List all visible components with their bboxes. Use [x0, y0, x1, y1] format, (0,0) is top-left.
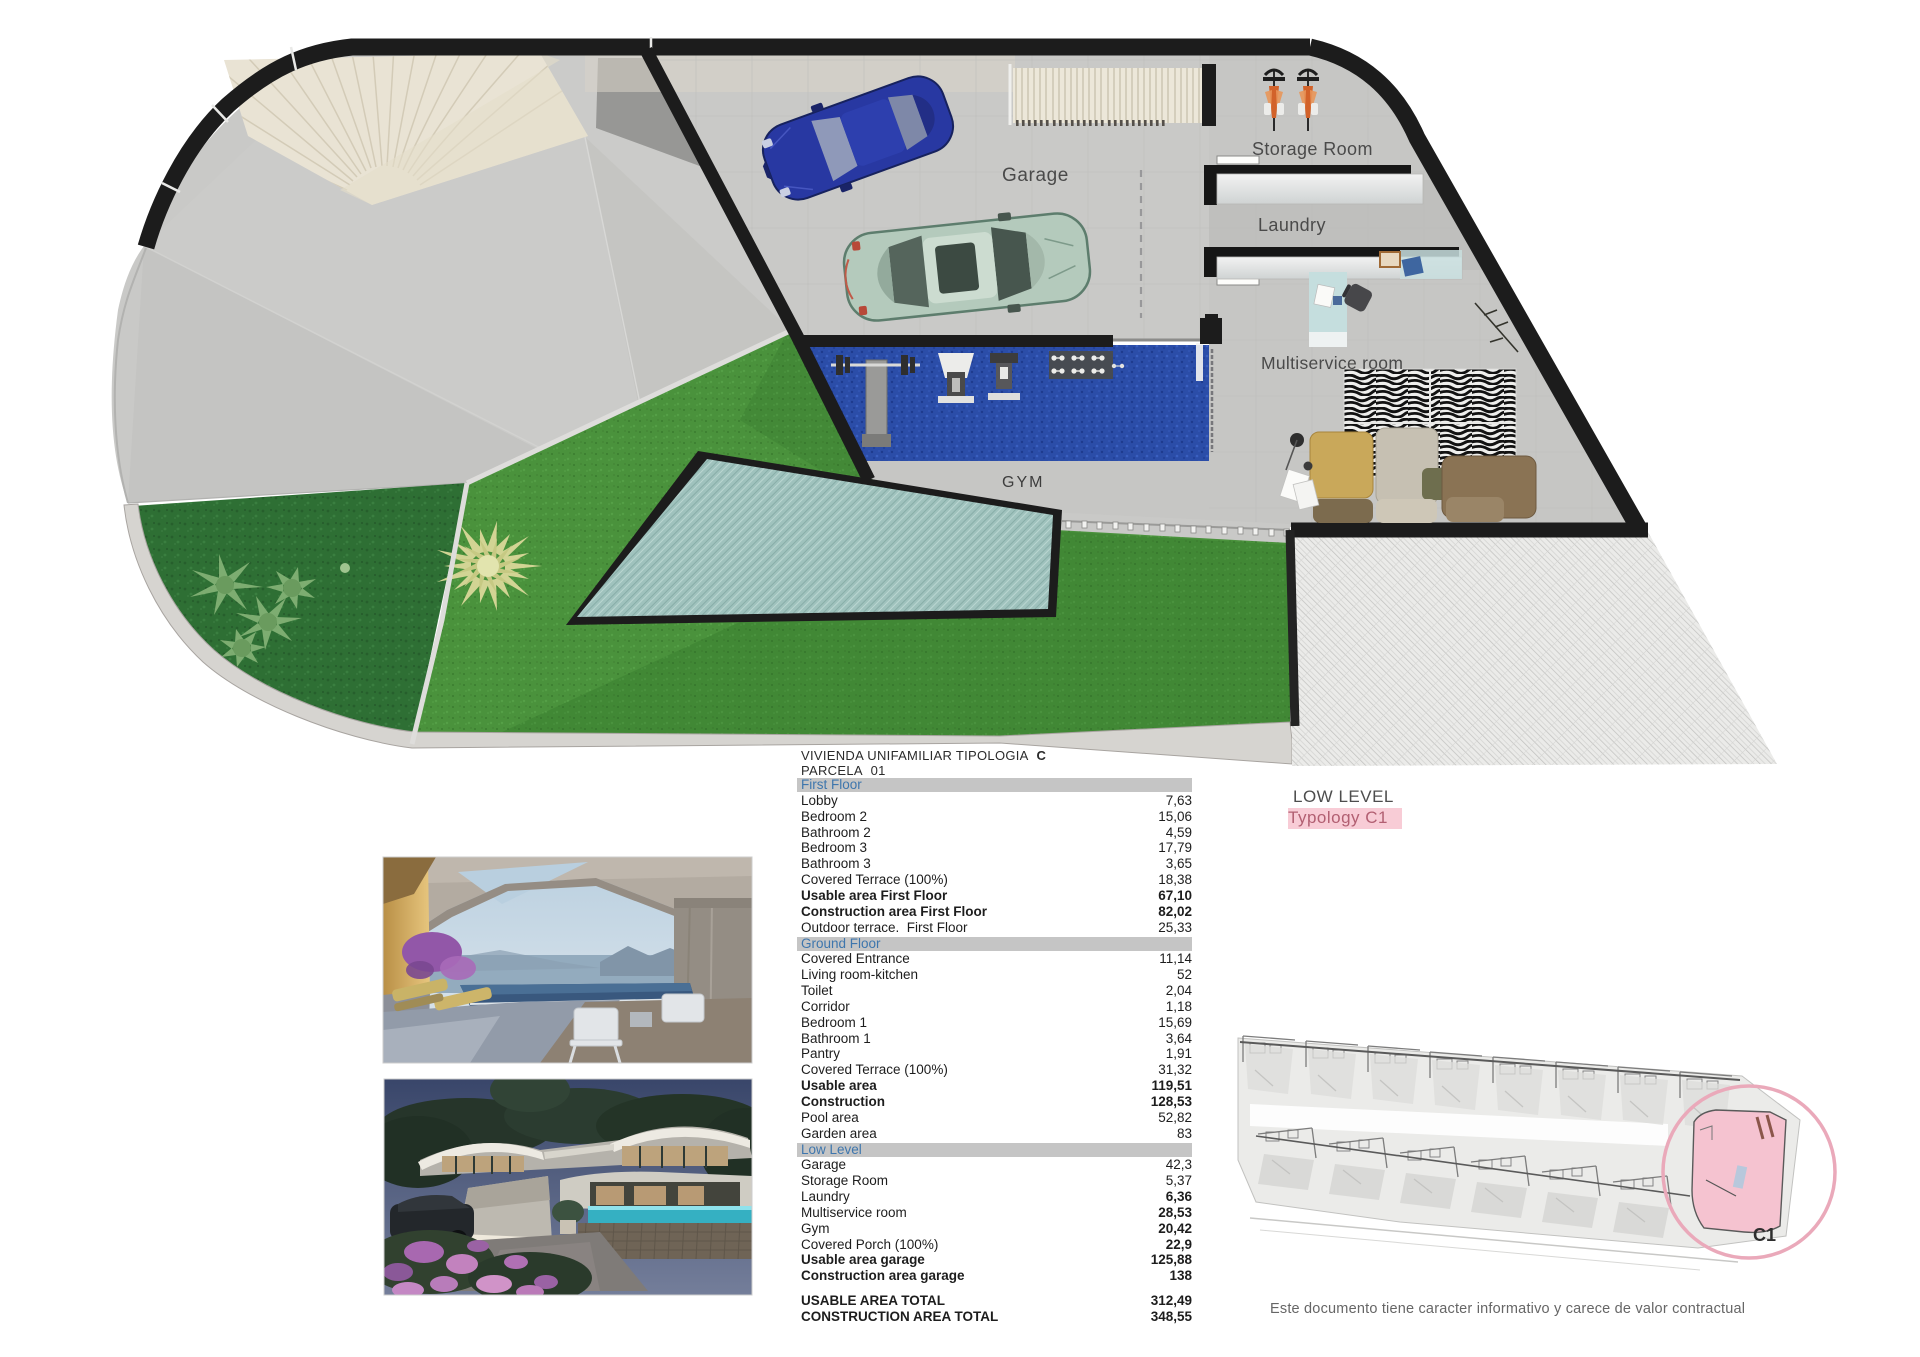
svg-text:GYM: GYM: [1002, 474, 1044, 491]
svg-text:C1: C1: [1753, 1225, 1776, 1245]
svg-text:Laundry: Laundry: [1258, 215, 1326, 235]
svg-text:Storage Room: Storage Room: [1252, 139, 1373, 159]
svg-text:Multiservice room: Multiservice room: [1261, 353, 1403, 373]
svg-text:Garage: Garage: [1002, 165, 1069, 186]
